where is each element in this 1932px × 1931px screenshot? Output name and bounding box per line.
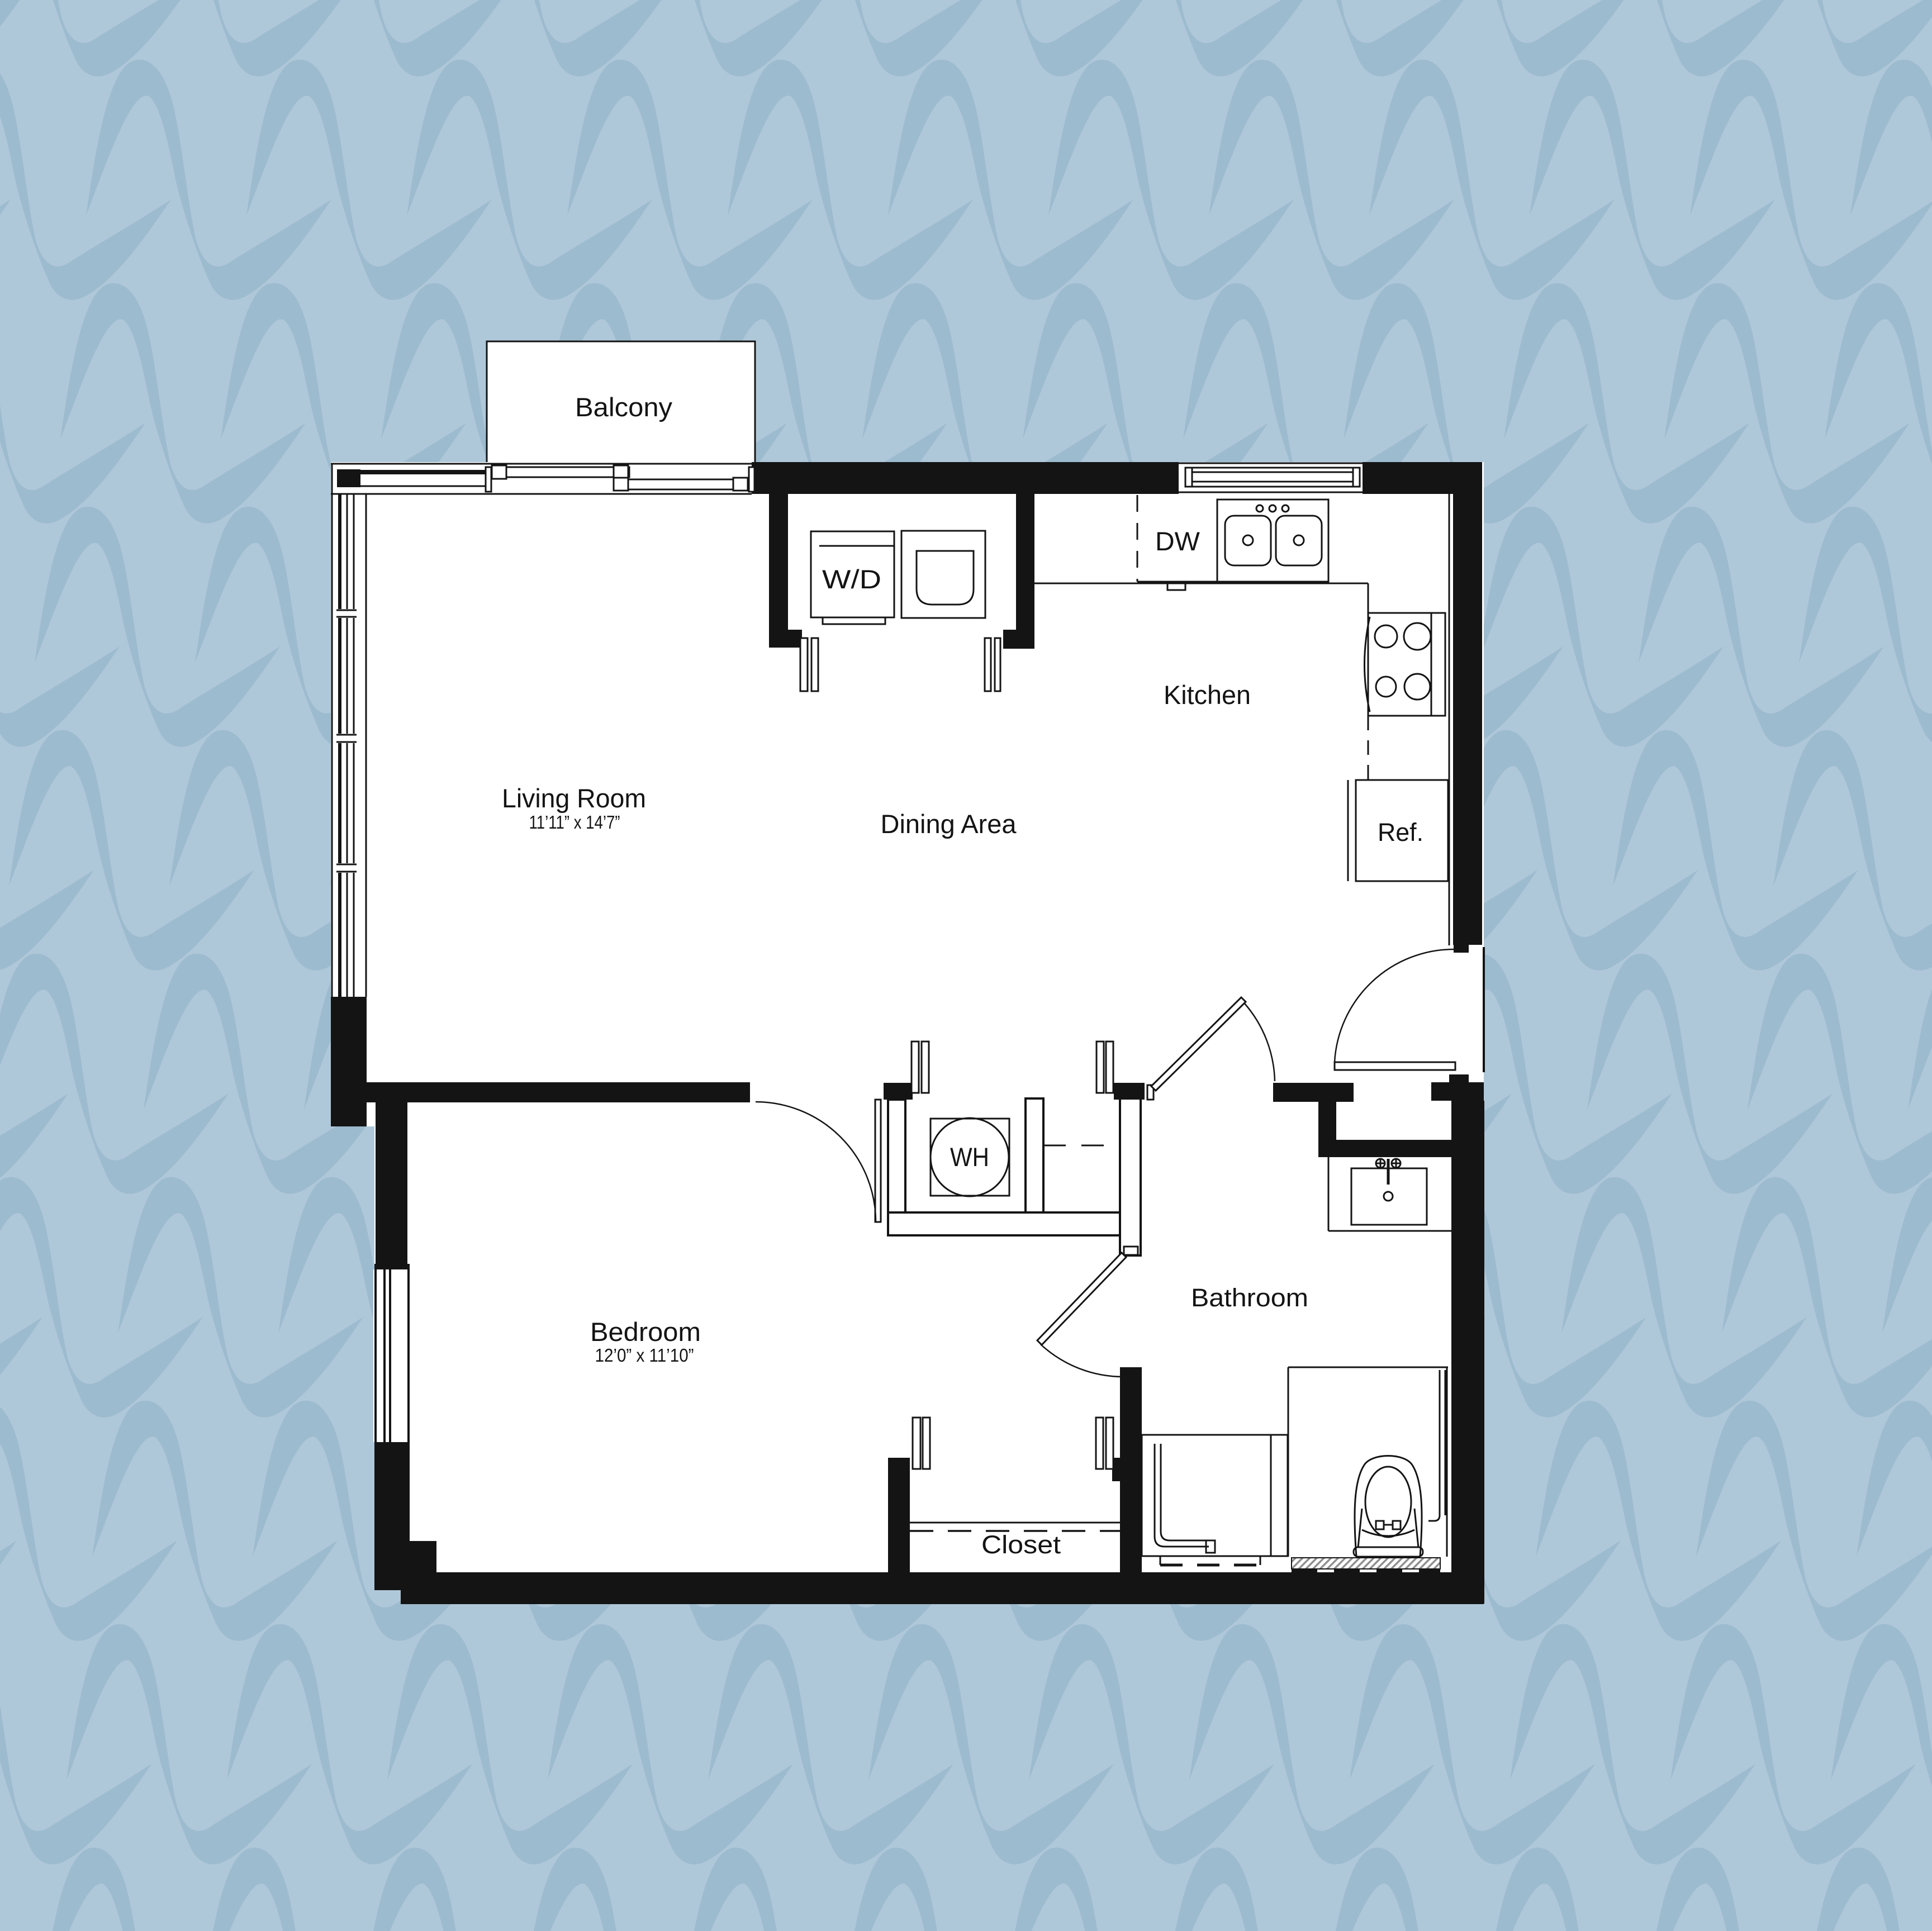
svg-text:12’0” x 11’10”: 12’0” x 11’10” xyxy=(595,1345,694,1366)
svg-text:Bedroom: Bedroom xyxy=(590,1317,701,1347)
svg-text:Ref.: Ref. xyxy=(1378,818,1423,846)
svg-text:Living Room: Living Room xyxy=(502,783,646,813)
svg-text:DW: DW xyxy=(1155,526,1200,556)
svg-text:WH: WH xyxy=(950,1142,989,1172)
svg-text:W/D: W/D xyxy=(822,564,881,594)
svg-text:Balcony: Balcony xyxy=(575,392,673,422)
svg-text:Kitchen: Kitchen xyxy=(1164,680,1251,710)
svg-text:Closet: Closet xyxy=(981,1530,1061,1559)
svg-text:Dining Area: Dining Area xyxy=(881,809,1017,839)
svg-text:11’11” x 14’7”: 11’11” x 14’7” xyxy=(529,812,620,833)
svg-text:Bathroom: Bathroom xyxy=(1191,1283,1308,1312)
